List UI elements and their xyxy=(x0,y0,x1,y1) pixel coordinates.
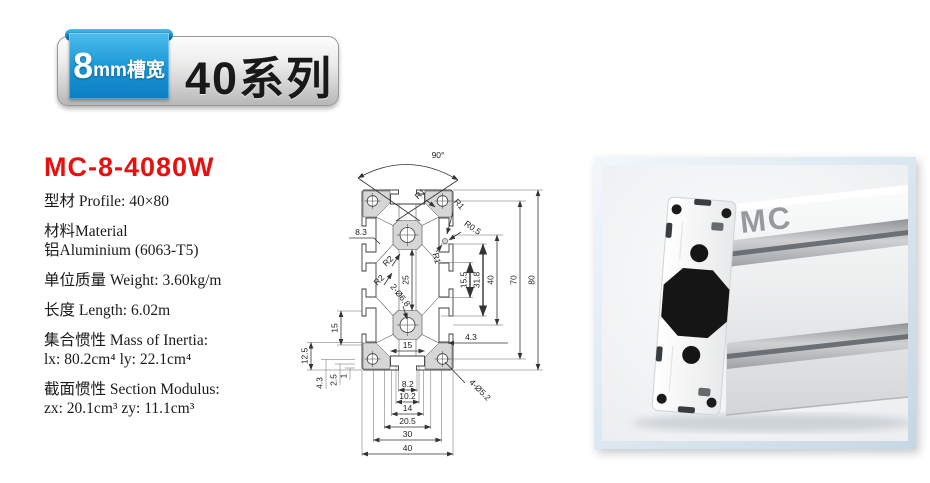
ribbon-body: 8mm槽宽 xyxy=(69,33,169,99)
spec-profile: 型材 Profile: 40×80 xyxy=(44,192,304,211)
spec-material-value: 铝Aluminium (6063-T5) xyxy=(44,241,304,260)
dim-25: 25 xyxy=(401,275,411,285)
profile-body: MC xyxy=(726,185,908,415)
floor-shadow xyxy=(632,414,908,432)
dim-15l: 15 xyxy=(330,323,340,333)
dim-40r: 40 xyxy=(486,275,496,285)
cross-section-drawing: 90° R1 R1 R0.5 R1 8.3 R2 R2 2-Ø6.8 25 15… xyxy=(295,140,560,475)
dim-125: 12.5 xyxy=(300,347,310,364)
slot-width-number: 8 xyxy=(73,48,93,84)
product-model-title: MC-8-4080W xyxy=(44,152,215,183)
dim-43l: 4.3 xyxy=(315,377,325,389)
dim-82: 8.2 xyxy=(402,379,414,389)
spec-weight: 单位质量 Weight: 3.60kg/m xyxy=(44,271,304,290)
spec-modulus-label: 截面惯性 Section Modulus: xyxy=(44,380,304,399)
spec-inertia-label: 集合惯性 Mass of Inertia: xyxy=(44,331,304,350)
dim-318: 31.8 xyxy=(472,271,482,288)
slot-width-ribbon: 8mm槽宽 xyxy=(69,29,169,99)
spec-length: 长度 Length: 6.02m xyxy=(44,301,304,320)
spec-inertia-values: lx: 80.2cm⁴ ly: 22.1cm⁴ xyxy=(44,350,304,369)
dim-80: 80 xyxy=(527,275,537,285)
product-photo: MC xyxy=(602,165,908,441)
dim-43r: 4.3 xyxy=(465,332,477,342)
dim-155: 15.5 xyxy=(459,271,469,288)
slot-width-unit: mm槽宽 xyxy=(93,61,165,80)
dim-30: 30 xyxy=(403,429,413,439)
spec-list: 型材 Profile: 40×80 材料Material 铝Aluminium … xyxy=(44,192,304,418)
dim-r1b: R1 xyxy=(452,197,467,212)
dim-1: 1 xyxy=(339,373,349,378)
dim-70: 70 xyxy=(509,275,519,285)
dim-83: 8.3 xyxy=(355,227,367,237)
dim-25l: 2.5 xyxy=(329,374,339,386)
series-label: 40系列 xyxy=(184,43,334,105)
dim-14: 14 xyxy=(403,403,413,413)
spec-material-label: 材料Material xyxy=(44,222,304,241)
dim-205: 20.5 xyxy=(399,416,416,426)
dim-102: 10.2 xyxy=(399,391,416,401)
dim-dia4: 4-Ø5.2 xyxy=(467,377,493,403)
dim-r05: R0.5 xyxy=(462,218,483,237)
dim-15m: 15 xyxy=(403,340,413,350)
r05-bump xyxy=(442,238,447,243)
brand-mark: MC xyxy=(738,200,794,240)
spec-modulus-values: zx: 20.1cm³ zy: 11.1cm³ xyxy=(44,399,304,418)
series-badge: 40系列 8mm槽宽 xyxy=(57,36,339,106)
product-photo-frame: MC xyxy=(594,157,916,449)
dim-angle: 90° xyxy=(432,150,445,160)
dim-40b: 40 xyxy=(403,443,413,453)
